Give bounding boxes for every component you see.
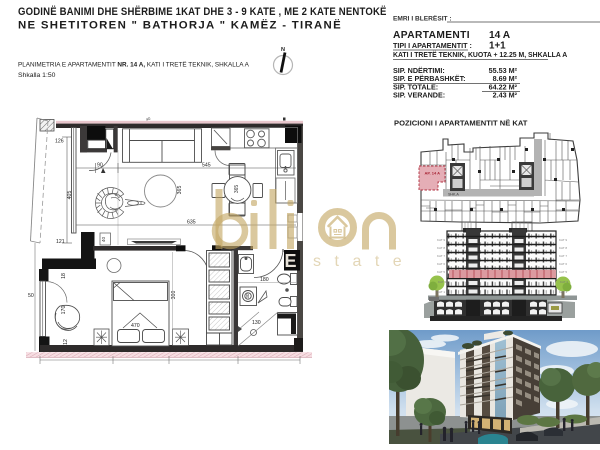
svg-text:KAT 5: KAT 5 xyxy=(559,270,567,274)
svg-text:EMRI I BLERËSIT :: EMRI I BLERËSIT : xyxy=(393,15,452,23)
svg-text:AP. 14 A: AP. 14 A xyxy=(425,171,441,176)
svg-text:170: 170 xyxy=(61,306,67,315)
svg-text:Shkalla 1:50: Shkalla 1:50 xyxy=(18,72,56,79)
svg-text:E: E xyxy=(285,251,297,271)
svg-text:12: 12 xyxy=(63,339,69,345)
svg-text:121: 121 xyxy=(56,239,65,245)
svg-text:TIPI I APARTAMENTIT :: TIPI I APARTAMENTIT : xyxy=(393,41,472,50)
svg-text:90: 90 xyxy=(97,163,103,169)
svg-text:30: 30 xyxy=(245,293,250,298)
svg-text:470: 470 xyxy=(131,323,140,329)
svg-text:APARTAMENTI: APARTAMENTI xyxy=(393,30,470,41)
svg-text:PLANIMETRIA E APARTAMENTIT NR.: PLANIMETRIA E APARTAMENTIT NR. 14 A, KAT… xyxy=(18,60,249,68)
svg-text:KATI I TRETË TEKNIK, KUOTA +: KATI I TRETË TEKNIK, KUOTA + 12.25 M, SH… xyxy=(393,51,567,59)
svg-text:KAT 3: KAT 3 xyxy=(438,280,446,284)
svg-text:130: 130 xyxy=(252,320,261,326)
svg-text:180: 180 xyxy=(260,277,269,283)
svg-text:KAT 3: KAT 3 xyxy=(560,280,568,284)
svg-text:NE SHETITOREN " BATHORJA " KA: NE SHETITOREN " BATHORJA " KAMËZ - TIRAN… xyxy=(18,19,342,32)
svg-text:635: 635 xyxy=(187,220,196,226)
svg-text:KAT 5: KAT 5 xyxy=(437,270,445,274)
svg-text:18: 18 xyxy=(61,273,67,279)
svg-text:365: 365 xyxy=(234,185,240,194)
svg-text:SIP. VERANDE:: SIP. VERANDE: xyxy=(393,91,445,100)
svg-text:N: N xyxy=(281,47,285,53)
svg-text:KAT 9: KAT 9 xyxy=(437,238,445,242)
svg-text:KAT 7: KAT 7 xyxy=(559,254,567,258)
svg-text:KAT 8: KAT 8 xyxy=(559,246,567,250)
svg-text:state: state xyxy=(313,253,415,270)
svg-text:KAT 6: KAT 6 xyxy=(437,262,445,266)
svg-text:300: 300 xyxy=(171,291,177,300)
svg-text:14 A: 14 A xyxy=(489,30,511,41)
svg-text:GODINË BANIMI DHE SHËRBIME 1KA: GODINË BANIMI DHE SHËRBIME 1KAT DHE 3 - … xyxy=(18,4,387,18)
svg-text:545: 545 xyxy=(202,163,211,169)
svg-text:POZICIONI I APARTAMENTIT NË KA: POZICIONI I APARTAMENTIT NË KAT xyxy=(394,119,528,128)
svg-text:KAT 1: KAT 1 xyxy=(437,290,445,294)
svg-text:KAT 1: KAT 1 xyxy=(559,290,567,294)
svg-text:KAT 7: KAT 7 xyxy=(437,254,445,258)
svg-text:2.43 M²: 2.43 M² xyxy=(493,91,518,100)
svg-text:KAT 6: KAT 6 xyxy=(559,262,567,266)
svg-text:SHK.A: SHK.A xyxy=(448,193,459,197)
svg-text:KAT 8: KAT 8 xyxy=(437,246,445,250)
svg-text:KAT 9: KAT 9 xyxy=(559,238,567,242)
svg-text:126: 126 xyxy=(55,139,64,145)
svg-text:50: 50 xyxy=(28,293,34,299)
svg-text:405: 405 xyxy=(67,191,73,200)
svg-text:40: 40 xyxy=(101,237,106,243)
svg-text:365: 365 xyxy=(177,186,183,195)
